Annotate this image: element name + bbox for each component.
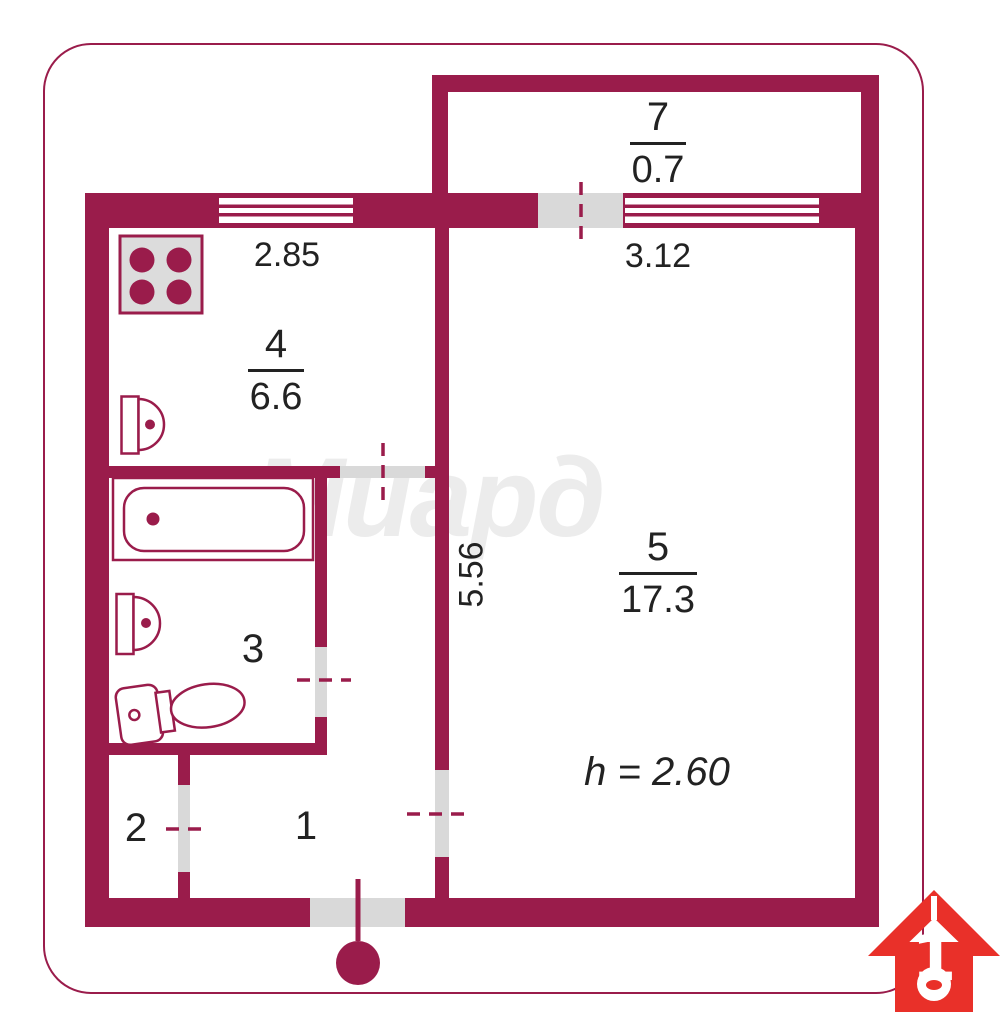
room-number: 4 — [216, 323, 336, 365]
room-label-kitchen: 4 6.6 — [216, 323, 336, 420]
fraction-line — [248, 369, 304, 372]
ceiling-height-label: h = 2.60 — [527, 750, 787, 795]
room-number: 7 — [598, 96, 718, 138]
wall-balcony-left — [432, 75, 448, 195]
room-area: 0.7 — [598, 149, 718, 193]
dimension-living-width: 3.12 — [578, 237, 738, 276]
room-area: 17.3 — [598, 579, 718, 623]
window-living — [625, 198, 819, 223]
door-entrance — [310, 898, 405, 927]
dimension-kitchen-width: 2.85 — [207, 236, 367, 275]
door-bathroom — [315, 647, 327, 717]
room-number: 5 — [598, 526, 718, 568]
room-area: 6.6 — [216, 376, 336, 420]
wall-middle-upper — [435, 228, 449, 770]
room-label-bathroom: 3 — [193, 627, 313, 672]
room-label-hall: 1 — [246, 804, 366, 849]
wall-bathroom-bottom — [85, 743, 327, 755]
room-label-closet: 2 — [76, 806, 196, 851]
floor-plan: Миард — [0, 0, 1006, 1024]
wall-balcony-right — [861, 75, 879, 195]
wall-right — [855, 193, 879, 927]
wall-bottom — [85, 898, 879, 927]
wall-middle-lower — [435, 857, 449, 898]
room-label-living: 5 17.3 — [598, 526, 718, 623]
fraction-line — [630, 142, 686, 145]
dimension-living-depth: 5.56 — [453, 495, 492, 655]
window-kitchen — [219, 198, 353, 223]
wall-balcony-top — [432, 75, 879, 92]
door-living — [435, 770, 449, 857]
room-label-balcony: 7 0.7 — [598, 96, 718, 193]
watermark: Миард — [252, 442, 604, 554]
door-kitchen — [340, 466, 425, 478]
door-balcony — [538, 193, 623, 228]
fraction-line — [619, 572, 697, 575]
